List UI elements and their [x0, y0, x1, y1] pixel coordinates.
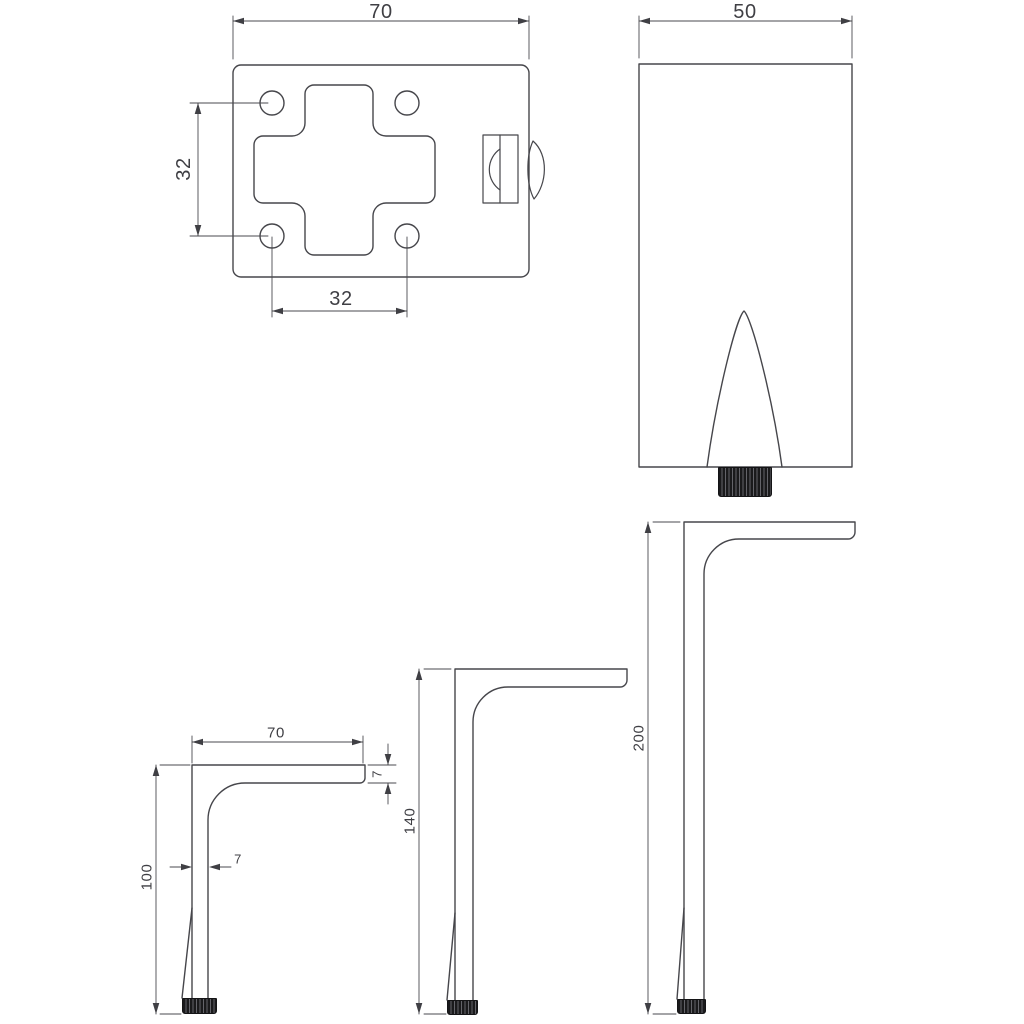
drawing-sheet: 70 32 32 50 100 70 7 7 140 200 — [0, 0, 1024, 1024]
dim-label-hole-spacing-horizontal: 32 — [329, 289, 352, 309]
dim-label-leg-100-arm-length: 70 — [267, 726, 285, 741]
arrowhead — [153, 1003, 160, 1014]
leg-100-taper-edge — [182, 908, 192, 998]
dim-leg-200-height — [645, 522, 680, 1014]
leg-side-view-140 — [447, 669, 627, 1000]
arrowhead — [396, 308, 407, 315]
arrowhead — [272, 308, 283, 315]
leg-200-outline — [684, 522, 855, 999]
arrowhead — [385, 754, 392, 765]
dim-label-hole-spacing-vertical: 32 — [174, 157, 194, 180]
arrowhead — [841, 18, 852, 25]
arrowhead — [233, 18, 244, 25]
front-taper-profile — [707, 311, 782, 467]
adjustable-foot-leg-200 — [677, 999, 706, 1014]
clip-inner-arc — [489, 149, 500, 190]
arrowhead — [352, 739, 363, 746]
adjustable-foot-leg-140 — [447, 1000, 478, 1015]
dim-label-leg-100-arm-thickness: 7 — [371, 770, 384, 778]
plate-top-view — [233, 65, 544, 277]
dimension-lines — [153, 16, 852, 1014]
arrowhead — [416, 1003, 423, 1014]
arrowhead — [645, 1003, 652, 1014]
arrowhead — [639, 18, 650, 25]
dim-label-leg-140-height: 140 — [403, 808, 418, 835]
dim-label-leg-200-height: 200 — [632, 725, 647, 752]
front-body-outline — [639, 64, 852, 467]
leg-100-outline — [192, 765, 365, 998]
arrowhead — [195, 103, 202, 114]
arrowhead — [518, 18, 529, 25]
arrowhead — [645, 522, 652, 533]
mounting-holes — [260, 91, 419, 248]
side-clip-detail — [483, 135, 544, 203]
dim-hole-spacing-vertical — [190, 103, 268, 236]
plate-outline — [233, 65, 529, 277]
mounting-hole — [395, 91, 419, 115]
leg-140-outline — [455, 669, 627, 1000]
clip-outer-lobe — [528, 141, 545, 199]
adjustable-foot-leg-100 — [182, 998, 217, 1014]
dim-label-leg-100-width: 7 — [234, 853, 242, 866]
arrowhead — [195, 225, 202, 236]
arrowhead — [153, 765, 160, 776]
adjustable-foot-front-view — [718, 467, 772, 497]
leg-front-view — [639, 64, 852, 467]
dim-leg-100-width — [170, 864, 231, 871]
arrowhead — [385, 783, 392, 794]
arrowhead — [416, 669, 423, 680]
arrowhead — [209, 864, 220, 871]
dim-label-front-width: 50 — [733, 2, 756, 22]
leg-140-taper-edge — [447, 913, 455, 1000]
leg-side-view-200 — [677, 522, 855, 999]
leg-200-taper-edge — [677, 908, 684, 999]
dim-label-plate-width: 70 — [369, 2, 392, 22]
dim-leg-140-height — [416, 669, 451, 1014]
arrowhead — [181, 864, 192, 871]
arrowhead — [192, 739, 203, 746]
leg-side-view-100 — [182, 765, 365, 998]
dim-label-leg-100-height: 100 — [140, 864, 155, 891]
